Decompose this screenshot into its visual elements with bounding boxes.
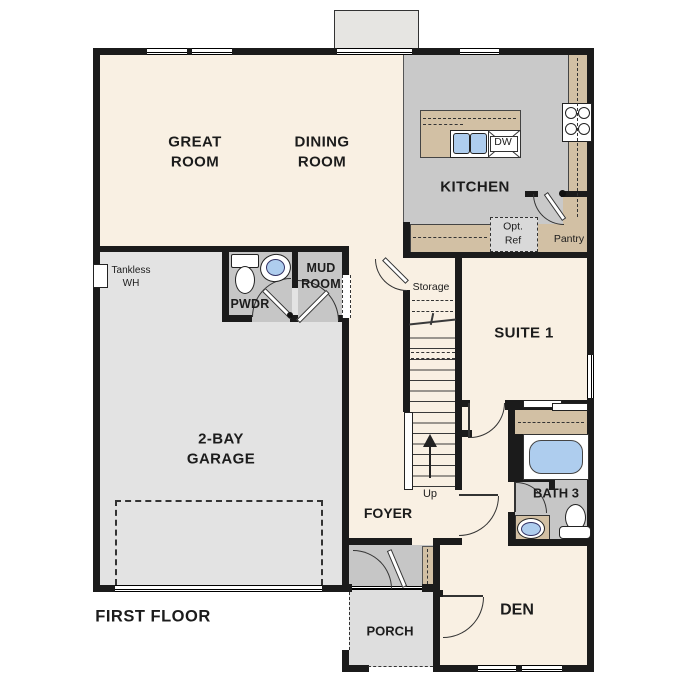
porch-label: PORCH <box>350 624 430 641</box>
powder-label: PWDR <box>215 296 285 312</box>
wall-tub-chunk <box>508 434 523 478</box>
storage-dash-1 <box>412 300 453 301</box>
tub-icon <box>529 440 583 474</box>
porch-dash-bottom <box>368 666 433 667</box>
wall-kitchen-bottom <box>403 252 594 258</box>
stair-up-arrow-head <box>423 434 437 447</box>
opt-ref-label: Opt. Ref <box>496 220 530 247</box>
suite1-label: SUITE 1 <box>464 323 584 343</box>
stove-burner-4 <box>578 123 590 135</box>
wall-hall-stub <box>433 538 462 545</box>
bump-out <box>334 10 419 50</box>
toilet-base-bath3-icon <box>559 526 591 539</box>
tankless-wh-label: Tankless WH <box>102 264 160 290</box>
door-leaf-den <box>443 595 483 597</box>
window-den-2 <box>522 665 562 672</box>
sink-bath3-basin <box>521 522 541 536</box>
counter-dash-right <box>577 58 578 196</box>
mud-room-label: MUD ROOM <box>292 260 350 293</box>
window-great-room-2 <box>192 48 232 55</box>
window-kitchen <box>460 48 499 55</box>
kitchen-dining-divider <box>403 55 404 222</box>
wall-garage-right <box>342 322 349 585</box>
wall-kitchen-stub <box>403 222 410 252</box>
stove-burner-1 <box>565 107 577 119</box>
den-label: DEN <box>477 601 557 622</box>
garage-door-opening <box>115 585 322 592</box>
wall-foyer-bottom <box>342 538 412 545</box>
window-bump-out <box>337 48 412 55</box>
garage-label: 2-BAY GARAGE <box>171 430 271 469</box>
closet-bypass-door-2 <box>552 403 588 411</box>
bottom-counter-dash <box>413 237 487 238</box>
stove-burner-2 <box>578 107 590 119</box>
door-leaf-foyer-hall <box>459 494 498 496</box>
door-leaf-suite1 <box>468 403 470 438</box>
wall-bath-bottom <box>508 539 594 546</box>
stair-up-arrow-line <box>429 446 431 478</box>
island-sink-basin-2 <box>470 133 487 154</box>
stair-overhead-dash-1 <box>411 352 455 353</box>
pantry-label: Pantry <box>539 233 599 247</box>
bath3-label: BATH 3 <box>516 486 596 503</box>
up-label: Up <box>410 487 450 501</box>
sink-powder-basin <box>266 259 285 276</box>
great-room-label: GREAT ROOM <box>150 133 240 172</box>
garage-door-dashed <box>115 500 323 585</box>
kitchen-bottom-counter <box>410 224 492 254</box>
floor-plan: GREAT ROOM DINING ROOM KITCHEN SUITE 1 2… <box>0 0 687 687</box>
toilet-bowl-powder-icon <box>235 266 255 294</box>
pantry-shelf-dash <box>577 199 578 217</box>
window-den-1 <box>478 665 516 672</box>
wall-porch-corner-h <box>342 665 369 672</box>
wall-left <box>93 48 100 592</box>
stove-burner-3 <box>565 123 577 135</box>
island-dash-1 <box>423 118 516 119</box>
stair-overhead-dash-2 <box>411 358 455 359</box>
floor-title: FIRST FLOOR <box>73 606 233 627</box>
storage-dash-2 <box>412 311 453 312</box>
stair-handrail <box>404 412 413 490</box>
door-hinge-pantry <box>559 190 566 197</box>
wall-vestibule-corner-l <box>342 584 352 592</box>
dining-room-label: DINING ROOM <box>277 133 367 172</box>
wall-stair-left <box>403 290 410 412</box>
entry-closet-rod-dash <box>427 549 428 584</box>
window-great-room-1 <box>147 48 187 55</box>
dishwasher-label: DW <box>488 136 518 150</box>
door-hinge-powder <box>287 312 293 318</box>
wall-greatroom-bottom <box>93 246 348 252</box>
wall-bath-left-lower <box>508 512 515 539</box>
island-dash-2 <box>423 124 463 125</box>
island-sink-basin-1 <box>453 133 470 154</box>
window-suite <box>587 355 594 398</box>
suite-closet-rod-dash <box>518 422 584 423</box>
pantry-floor <box>563 197 587 224</box>
wall-vestibule-corner-r <box>422 584 440 592</box>
foyer-label: FOYER <box>343 504 433 522</box>
wall-den-left <box>433 545 440 672</box>
storage-label: Storage <box>396 281 466 295</box>
kitchen-label: KITCHEN <box>410 177 540 197</box>
porch-dash-left <box>349 592 350 650</box>
